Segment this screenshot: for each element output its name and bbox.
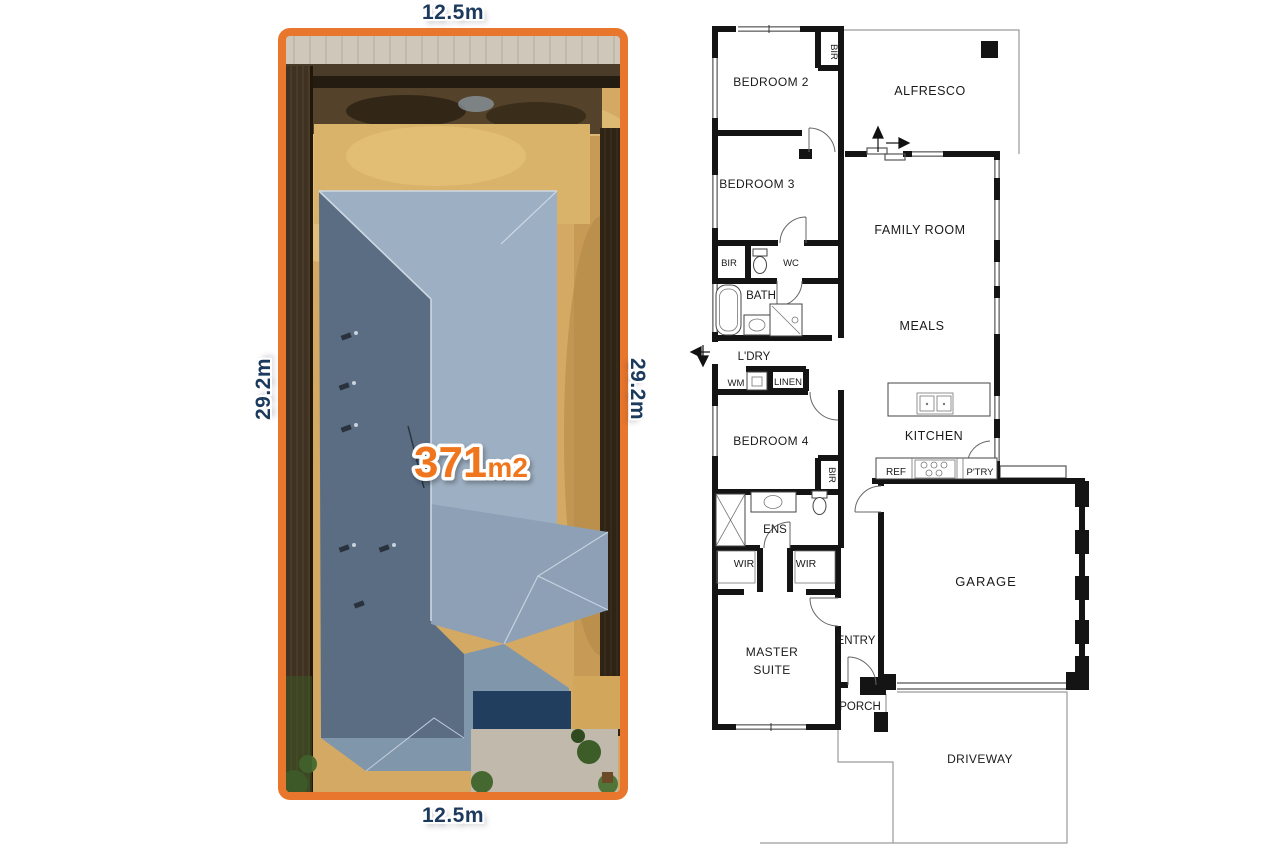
room-label-family-room: FAMILY ROOM: [874, 223, 965, 237]
dimension-top: 12.5m: [398, 1, 508, 25]
room-label-ensuite: ENS: [763, 524, 787, 536]
ens-shower-icon: [716, 494, 745, 546]
room-label-driveway: DRIVEWAY: [947, 752, 1013, 766]
room-label-bedroom3: BEDROOM 3: [719, 177, 795, 191]
listing-image: 12.5m 12.5m 29.2m 29.2m 371m2: [0, 0, 1284, 856]
sliding-door: [867, 148, 905, 160]
aerial-photo: [278, 28, 628, 800]
ens-vanity-icon: [751, 492, 796, 512]
area-value: 371: [414, 438, 487, 487]
room-label-wir-left: WIR: [734, 558, 755, 570]
kitchen-island-icon: [888, 383, 990, 416]
room-label-wm: WM: [728, 378, 745, 389]
room-label-bedroom2: BEDROOM 2: [733, 75, 809, 89]
area-unit: m2: [487, 452, 527, 483]
bathtub-icon: [716, 285, 741, 335]
room-label-bir-bedroom4: BIR: [826, 467, 837, 483]
room-label-master-line1: MASTER: [746, 645, 798, 659]
room-label-bir-hall: BIR: [721, 258, 737, 269]
floor-plan: BEDROOM 2 BIR ALFRESCO BEDROOM 3 BIR WC …: [688, 20, 1092, 850]
svg-text:371m2: 371m2: [414, 438, 528, 487]
room-label-bedroom4: BEDROOM 4: [733, 434, 809, 448]
porch-shadow: [473, 691, 571, 729]
room-label-linen: LINEN: [774, 377, 802, 388]
room-label-wc: WC: [783, 258, 799, 269]
dimension-right: 29.2m: [625, 334, 649, 444]
alfresco-column: [981, 41, 998, 58]
room-label-pantry: P'TRY: [967, 467, 995, 478]
dimension-bottom: 12.5m: [398, 804, 508, 828]
room-label-master-line2: SUITE: [753, 663, 790, 677]
neighbour-shed-roof: [286, 36, 622, 88]
bath-shower-icon: [770, 304, 802, 336]
wc-toilet-icon: [753, 249, 767, 274]
right-fence: [600, 128, 622, 736]
room-label-laundry: L'DRY: [738, 351, 771, 363]
room-label-entry: ENTRY: [837, 635, 876, 647]
dimension-left: 29.2m: [252, 334, 276, 444]
aerial-photo-art: [286, 36, 622, 794]
room-label-bath: BATH: [746, 290, 776, 302]
room-label-alfresco: ALFRESCO: [894, 84, 965, 98]
area-label: 371m2: [404, 428, 564, 496]
ens-toilet-icon: [812, 491, 827, 515]
bath-vanity-icon: [744, 315, 770, 335]
walls: [712, 26, 1085, 730]
room-label-kitchen: KITCHEN: [905, 429, 963, 443]
driveway-outline: [760, 692, 1067, 843]
laundry-trough-icon: [747, 372, 767, 390]
room-label-ref: REF: [886, 467, 906, 478]
room-label-bir-bedroom2: BIR: [828, 44, 839, 60]
room-label-porch: PORCH: [839, 701, 881, 713]
room-label-garage: GARAGE: [955, 574, 1017, 589]
room-label-meals: MEALS: [900, 319, 945, 333]
room-label-wir-right: WIR: [796, 558, 817, 570]
